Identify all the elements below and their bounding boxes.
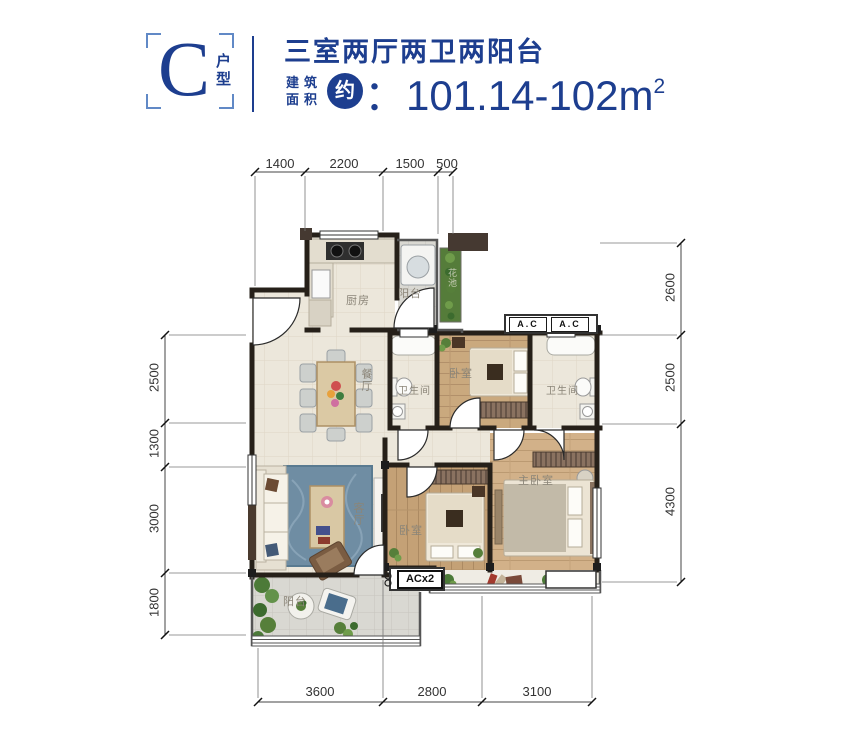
balcony-top-furniture (401, 245, 435, 285)
wall-block (300, 228, 312, 240)
ac-unit-label-1: A.C (509, 317, 547, 332)
dining-table (317, 362, 355, 426)
room-label-bath-left: 卫生间 (398, 382, 431, 397)
bathtub (547, 336, 595, 355)
room-label-balcony-bottom: 阳台 (283, 593, 307, 609)
room-label-living: 客厅 (350, 502, 366, 526)
dim-left-1: 2500 (147, 353, 162, 403)
room-label-kitchen: 厨房 (346, 292, 370, 308)
nightstand (472, 486, 485, 497)
dim-bottom-3: 3100 (512, 684, 562, 699)
room-label-master: 主卧室 (518, 472, 554, 488)
room-label-flower-bed: 花池 (446, 268, 459, 288)
dim-left-3: 3000 (147, 494, 162, 544)
bench (495, 490, 502, 544)
acx2-label: ACx2 (397, 570, 443, 589)
dim-right-3: 4300 (663, 477, 678, 527)
dim-left-4: 1800 (147, 578, 162, 628)
wardrobe (533, 452, 597, 467)
sink (393, 407, 403, 417)
dim-bottom-1: 3600 (295, 684, 345, 699)
room-label-dining: 餐厅 (358, 368, 374, 392)
floorplan-drawing (0, 0, 850, 733)
dim-left-2: 1300 (147, 419, 162, 469)
sink (583, 407, 593, 417)
bathtub (391, 336, 436, 355)
floorplan-page: C 户型 三室两厅两卫两阳台 建筑 面积 约 ：101.14-102m2 (0, 0, 850, 733)
dim-right-1: 2600 (663, 263, 678, 313)
wall-block (448, 233, 488, 251)
room-label-bedroom-bottom: 卧室 (399, 522, 423, 538)
ac-unit-label-2: A.C (551, 317, 589, 332)
dim-right-2: 2500 (663, 353, 678, 403)
room-label-bedroom-top: 卧室 (449, 365, 473, 381)
dim-top-2: 2200 (319, 156, 369, 171)
room-label-bath-right: 卫生间 (546, 382, 579, 397)
dim-top-1: 1400 (255, 156, 305, 171)
dim-top-4: 500 (422, 156, 472, 171)
window-sill (546, 571, 596, 588)
dim-bottom-2: 2800 (407, 684, 457, 699)
kitchen-sink (312, 270, 330, 298)
nightstand (452, 337, 465, 348)
fridge (309, 300, 331, 326)
room-label-balcony-top: 阳台 (398, 285, 422, 301)
wall-block (248, 503, 256, 560)
